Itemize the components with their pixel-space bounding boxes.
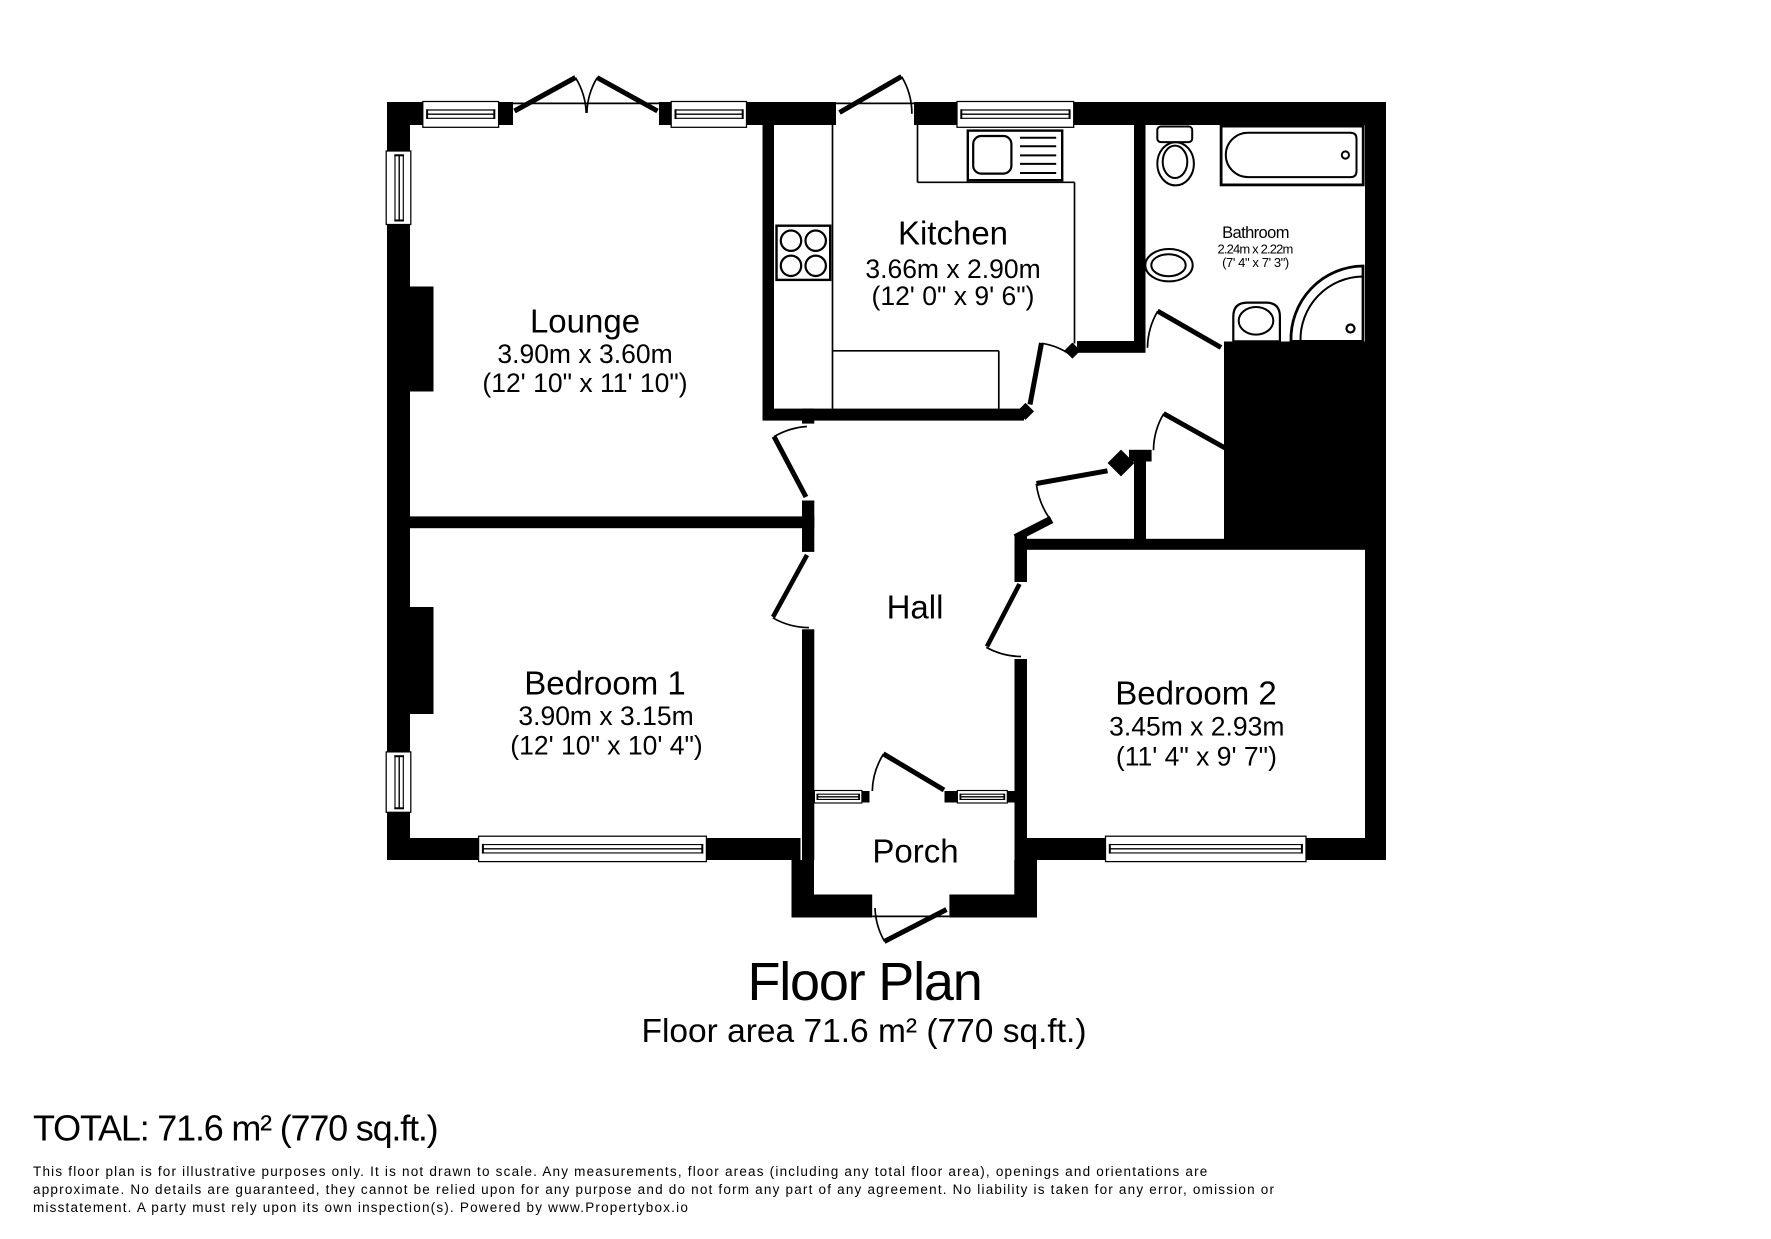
svg-text:Bathroom: Bathroom	[1222, 224, 1289, 242]
svg-text:(7' 4" x 7' 3"): (7' 4" x 7' 3")	[1222, 255, 1289, 270]
svg-text:(11' 4" x 9' 7"): (11' 4" x 9' 7")	[1116, 742, 1277, 772]
svg-text:Kitchen: Kitchen	[898, 215, 1008, 252]
svg-text:(12' 10" x 10' 4"): (12' 10" x 10' 4")	[510, 731, 702, 761]
svg-text:Lounge: Lounge	[530, 303, 640, 340]
svg-text:Hall: Hall	[887, 589, 944, 626]
svg-text:Floor Plan: Floor Plan	[747, 952, 981, 1012]
svg-text:3.90m x 3.60m: 3.90m x 3.60m	[497, 339, 672, 369]
svg-text:Porch: Porch	[872, 833, 958, 870]
svg-text:3.90m x 3.15m: 3.90m x 3.15m	[518, 701, 693, 731]
svg-text:Floor area 71.6 m² (770 sq.ft.: Floor area 71.6 m² (770 sq.ft.)	[642, 1013, 1087, 1050]
svg-text:(12' 10" x 11' 10"): (12' 10" x 11' 10")	[482, 368, 687, 398]
svg-text:Bedroom 2: Bedroom 2	[1115, 675, 1276, 712]
svg-text:(12' 0" x 9' 6"): (12' 0" x 9' 6")	[872, 281, 1035, 311]
svg-text:misstatement. A party must rel: misstatement. A party must rely upon its…	[33, 1200, 689, 1215]
svg-text:3.66m x 2.90m: 3.66m x 2.90m	[865, 254, 1040, 284]
svg-text:TOTAL: 71.6 m² (770 sq.ft.): TOTAL: 71.6 m² (770 sq.ft.)	[33, 1108, 437, 1149]
svg-text:approximate. No details are gu: approximate. No details are guaranteed, …	[33, 1182, 1275, 1197]
svg-text:This floor plan is for illustr: This floor plan is for illustrative purp…	[33, 1164, 1209, 1179]
svg-text:3.45m x 2.93m: 3.45m x 2.93m	[1109, 712, 1284, 742]
svg-text:Bedroom 1: Bedroom 1	[524, 665, 685, 702]
